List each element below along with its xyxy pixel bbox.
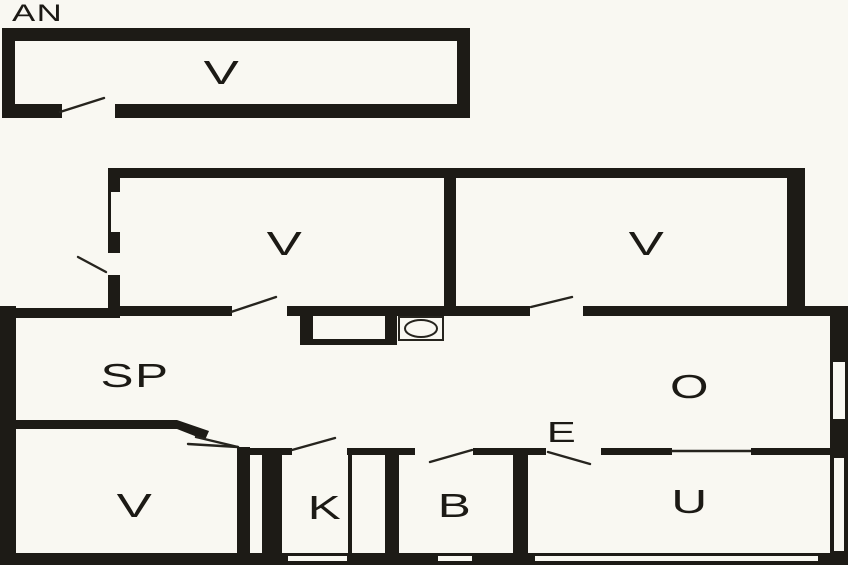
lintel-hall-1: [248, 448, 292, 455]
wall-bath-left: [385, 448, 399, 553]
room-label-bedroom-right: V: [629, 226, 666, 263]
window-kitchen-bottom: [288, 556, 347, 561]
window-o-room: [833, 362, 845, 419]
niche-interior: [313, 316, 385, 339]
door-opening-side-entrance: [108, 253, 120, 275]
floor-plan-canvas: AN V V V SP O E V K B U: [0, 0, 848, 565]
room-label-sp: SP: [100, 357, 169, 394]
wall-exterior-left: [0, 306, 16, 565]
wall-lower-v-right: [237, 447, 250, 553]
annex-door-opening: [62, 103, 115, 118]
fireplace-ring-icon: [405, 320, 437, 337]
lintel-hall-5: [751, 448, 833, 455]
window-utility-right: [834, 458, 844, 551]
wall-bath-right: [513, 448, 528, 553]
lintel-hall-2: [347, 448, 415, 455]
room-label-e: E: [547, 416, 578, 448]
window-bath-bottom: [438, 556, 472, 561]
annex-label: AN: [12, 0, 63, 26]
wall-seg-e: [583, 306, 805, 316]
wall-seg-a: [0, 308, 110, 318]
wall-seg-b: [120, 306, 232, 316]
room-label-k: K: [308, 489, 343, 526]
wall-bedrooms-top: [108, 168, 805, 178]
wall-seg-d: [456, 306, 530, 316]
wall-bedrooms-right: [787, 168, 805, 313]
room-label-b: B: [438, 487, 473, 524]
window-utility-bottom: [535, 556, 818, 561]
wall-bedroom-divider: [444, 172, 456, 316]
wall-kitchen-left: [262, 455, 282, 553]
room-label-annex-v: V: [204, 55, 241, 92]
room-label-lower-v: V: [117, 488, 154, 525]
wall-bedrooms-left: [108, 168, 120, 318]
wall-kitchen-right-thin: [348, 455, 352, 553]
lintel-hall-3: [473, 448, 546, 455]
lintel-hall-4: [601, 448, 672, 455]
floor-plan-page: AN V V V SP O E V K B U: [0, 0, 848, 565]
wall-lower-v-top: [14, 420, 177, 429]
room-label-u: U: [671, 483, 708, 520]
room-label-bedroom-left: V: [267, 226, 304, 263]
window-bedroom-left: [111, 192, 120, 232]
room-label-o: O: [670, 368, 710, 405]
